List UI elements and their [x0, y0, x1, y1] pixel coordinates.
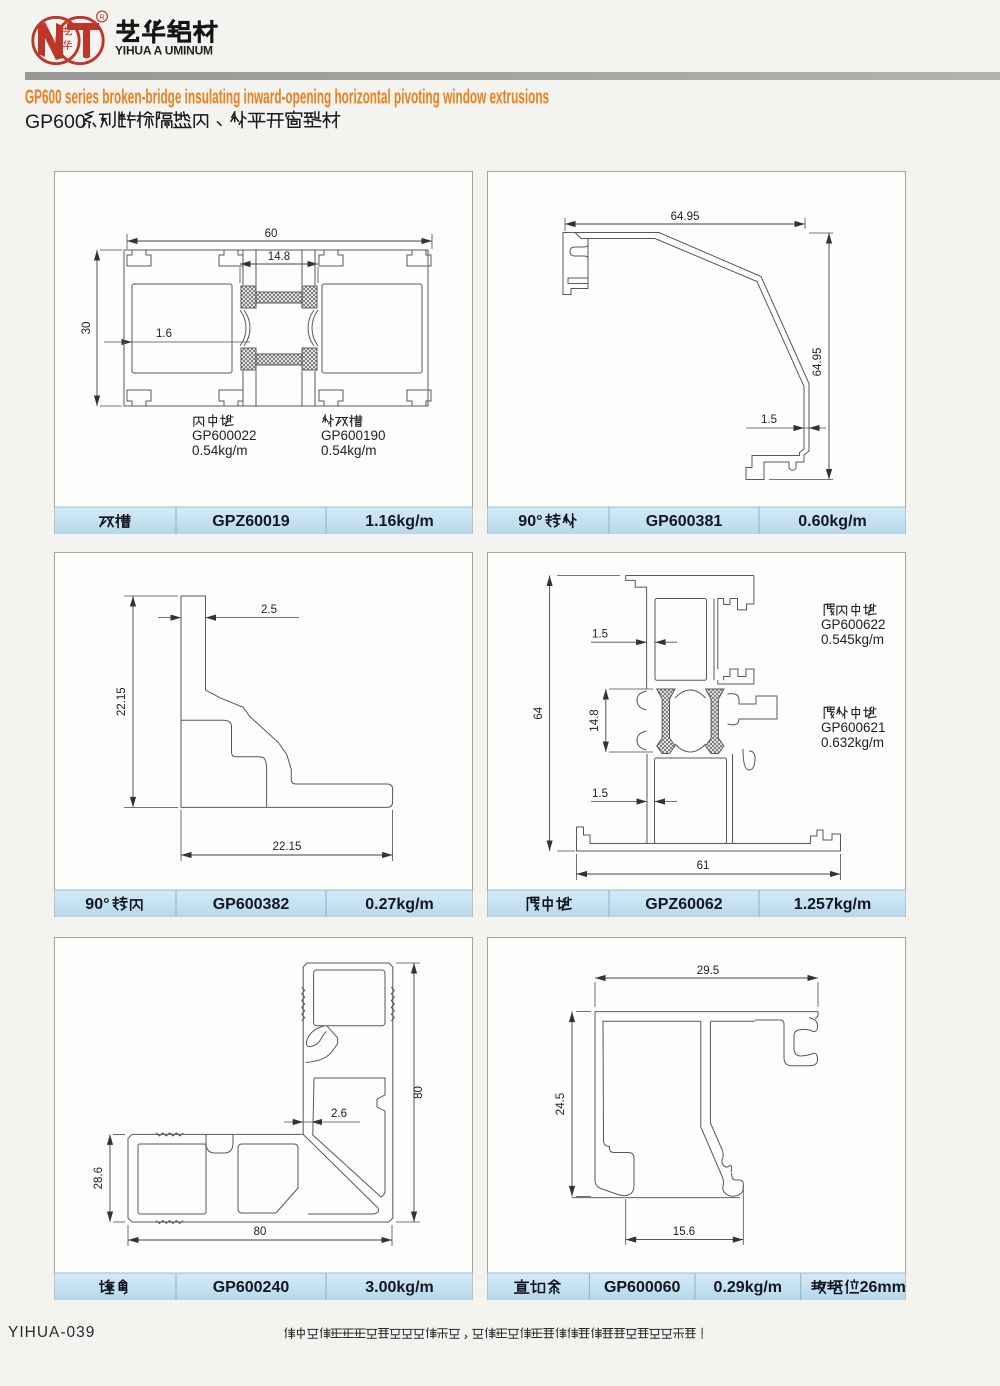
svg-text:YIHUA-039: YIHUA-039: [8, 1324, 95, 1341]
svg-text:GP600: GP600: [25, 111, 86, 133]
svg-text:0.29kg/m: 0.29kg/m: [714, 1279, 782, 1296]
svg-text:R: R: [99, 13, 105, 22]
svg-text:22.15: 22.15: [116, 687, 128, 716]
svg-text:90°: 90°: [518, 513, 542, 530]
svg-text:14.8: 14.8: [589, 709, 601, 731]
svg-text:80: 80: [413, 1086, 425, 1099]
svg-text:YIHUA A UMINUM: YIHUA A UMINUM: [115, 44, 213, 58]
svg-text:GP600240: GP600240: [213, 1279, 290, 1296]
svg-text:22.15: 22.15: [273, 841, 302, 853]
svg-text:64.95: 64.95: [671, 211, 700, 223]
svg-text:GP600022: GP600022: [192, 428, 257, 443]
svg-text:24.5: 24.5: [555, 1093, 567, 1115]
svg-text:GPZ60062: GPZ60062: [645, 896, 722, 913]
svg-text:1.16kg/m: 1.16kg/m: [365, 513, 433, 530]
svg-text:GPZ60019: GPZ60019: [212, 513, 289, 530]
svg-text:0.545kg/m: 0.545kg/m: [821, 632, 884, 647]
svg-text:GP600382: GP600382: [213, 896, 290, 913]
svg-text:1.5: 1.5: [592, 629, 608, 641]
svg-text:61: 61: [697, 860, 710, 872]
svg-text:GP600622: GP600622: [821, 617, 886, 632]
svg-text:1.257kg/m: 1.257kg/m: [794, 896, 871, 913]
svg-text:30: 30: [81, 322, 93, 335]
svg-text:60: 60: [265, 228, 278, 240]
svg-text:0.54kg/m: 0.54kg/m: [321, 443, 377, 458]
svg-text:14.8: 14.8: [268, 251, 290, 263]
svg-text:0.60kg/m: 0.60kg/m: [798, 513, 866, 530]
svg-text:1.5: 1.5: [592, 788, 608, 800]
svg-text:90°: 90°: [85, 896, 109, 913]
svg-text:64.95: 64.95: [812, 348, 824, 377]
svg-text:28.6: 28.6: [93, 1167, 105, 1189]
svg-text:80: 80: [254, 1226, 267, 1238]
svg-text:26mm: 26mm: [860, 1279, 906, 1296]
svg-text:2.6: 2.6: [331, 1108, 347, 1120]
svg-text:2.5: 2.5: [261, 604, 277, 616]
svg-text:64: 64: [533, 706, 545, 719]
svg-text:GP600621: GP600621: [821, 720, 886, 735]
svg-text:3.00kg/m: 3.00kg/m: [365, 1279, 433, 1296]
svg-text:15.6: 15.6: [673, 1226, 695, 1238]
svg-text:0.27kg/m: 0.27kg/m: [365, 896, 433, 913]
svg-text:GP600190: GP600190: [321, 428, 386, 443]
svg-text:1.5: 1.5: [761, 414, 777, 426]
svg-text:GP600381: GP600381: [646, 513, 723, 530]
svg-text:1.6: 1.6: [156, 328, 172, 340]
svg-text:29.5: 29.5: [697, 965, 719, 977]
svg-text:0.632kg/m: 0.632kg/m: [821, 735, 884, 750]
svg-text:GP600060: GP600060: [604, 1279, 681, 1296]
svg-text:0.54kg/m: 0.54kg/m: [192, 443, 248, 458]
svg-text:GP600 series broken-bridge ins: GP600 series broken-bridge insulating in…: [25, 86, 549, 108]
